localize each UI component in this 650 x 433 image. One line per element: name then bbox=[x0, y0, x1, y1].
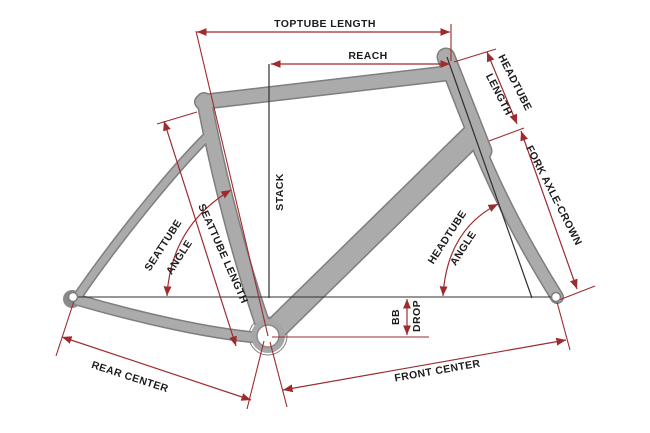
front-axle-marker bbox=[552, 293, 561, 302]
ext-seattube-top-tick bbox=[157, 112, 197, 124]
label-reach: REACH bbox=[348, 50, 387, 62]
label-front-center: FRONT CENTER bbox=[394, 358, 482, 385]
geometry-svg: TOPTUBE LENGTH REACH STACK HEADTUBE LENG… bbox=[0, 0, 650, 433]
seattube-axis-line bbox=[196, 31, 268, 336]
label-stack: STACK bbox=[274, 173, 286, 210]
ext-front-axle-down bbox=[557, 302, 570, 350]
ext-bb-rear bbox=[247, 341, 264, 409]
label-drop: DROP bbox=[411, 300, 423, 332]
ext-rear-axle bbox=[56, 301, 74, 356]
dim-front-center bbox=[283, 340, 566, 390]
toptube-fill bbox=[202, 73, 450, 102]
label-fork-axle-crown: FORK AXLE-CROWN bbox=[523, 144, 584, 248]
label-rear-center: REAR CENTER bbox=[90, 359, 170, 395]
label-bb: BB bbox=[390, 309, 402, 325]
rear-axle-marker bbox=[69, 293, 78, 302]
frame-render bbox=[63, 57, 557, 355]
bike-geometry-diagram: TOPTUBE LENGTH REACH STACK HEADTUBE LENG… bbox=[0, 0, 650, 433]
ext-headtube-bottom-tick bbox=[489, 128, 524, 141]
arc-headtube-angle bbox=[443, 204, 498, 296]
label-toptube-length: TOPTUBE LENGTH bbox=[274, 18, 376, 30]
ext-headtube-top-tick bbox=[454, 49, 496, 62]
